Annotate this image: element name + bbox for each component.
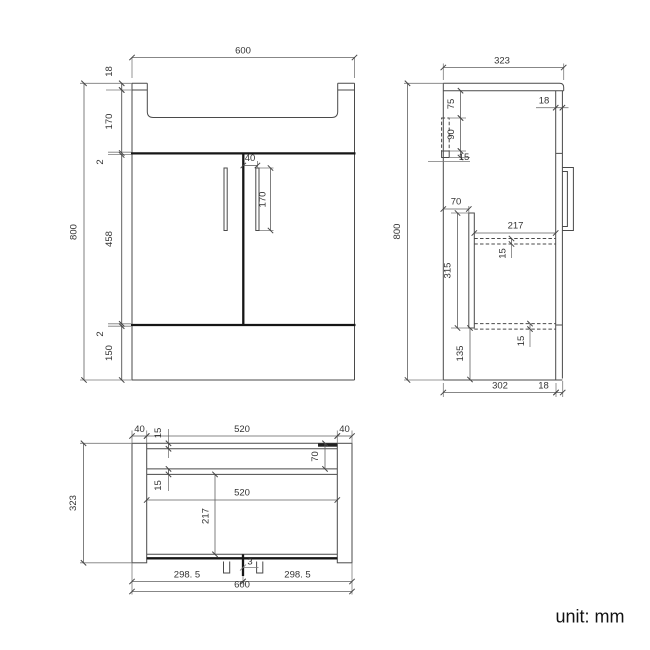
- front-height-label: 800: [69, 224, 80, 240]
- front-basin-label: 170: [104, 114, 115, 130]
- plan-structure-lines: [147, 443, 338, 573]
- side-partition-panel: [469, 213, 475, 328]
- front-view: 600 800 18 170 2 458 2 150 40 170: [69, 46, 356, 381]
- plan-rail-depth-label: 70: [310, 451, 321, 462]
- side-bracket-top-label: 75: [446, 99, 457, 110]
- plan-depth-label: 323: [68, 495, 79, 511]
- plan-panel-right-label: 40: [339, 424, 350, 435]
- front-width-label: 600: [235, 46, 251, 57]
- plan-back-thickness-label: 15: [153, 428, 164, 439]
- plan-inner-width-label: 520: [234, 488, 250, 499]
- front-handle-length-label: 170: [258, 192, 269, 208]
- technical-drawing: 600 800 18 170 2 458 2 150 40 170 323 18: [0, 0, 650, 650]
- side-shelves-hidden: [474, 239, 555, 330]
- plan-width-label: 600: [234, 580, 250, 591]
- side-bracket-foot-label: 15: [459, 152, 470, 163]
- side-outline: [443, 83, 573, 380]
- side-extension-lines: [404, 64, 569, 398]
- front-handle-left: [224, 168, 227, 231]
- side-bracket-foot: [442, 151, 450, 158]
- plan-panel-left-label: 40: [134, 424, 145, 435]
- side-shelf-depth-label: 217: [508, 221, 524, 232]
- side-depth-label: 323: [494, 56, 510, 67]
- side-shelf-thickness-label: 15: [498, 248, 509, 259]
- side-door-thickness-label: 18: [539, 96, 550, 107]
- front-plinth-label: 150: [104, 345, 115, 361]
- side-view: 323 18 75 90 15 70 217 15 315 135 15 800…: [392, 56, 573, 398]
- front-extension-lines: [80, 57, 355, 380]
- plan-rail-thickness-label: 15: [153, 480, 164, 491]
- plan-door-right-label: 298. 5: [284, 570, 310, 581]
- plan-view: 40 520 40 15 70 15 520 217 323 3 298. 5 …: [68, 424, 352, 595]
- front-door-label: 458: [104, 231, 115, 247]
- unit-note: unit: mm: [555, 607, 624, 627]
- front-gap-top-label: 2: [95, 159, 106, 164]
- front-gap-bottom-label: 2: [95, 331, 106, 336]
- front-handle-offset-label: 40: [245, 153, 256, 164]
- plan-back-width-label: 520: [234, 424, 250, 435]
- plan-door-left-label: 298. 5: [174, 570, 200, 581]
- plan-left-panel: [132, 443, 147, 563]
- side-front-lip-label: 18: [538, 381, 549, 392]
- side-base-depth-label: 302: [492, 381, 508, 392]
- side-bracket-height-label: 90: [446, 129, 457, 140]
- plan-inner-depth-label: 217: [201, 508, 212, 524]
- side-bottom-thickness-label: 15: [516, 336, 527, 347]
- front-panel-lines: [131, 153, 356, 325]
- side-height-label: 800: [392, 224, 403, 240]
- front-rim-label: 18: [104, 66, 115, 77]
- side-bottom-space-label: 135: [455, 346, 466, 362]
- side-rail-offset-label: 70: [451, 197, 462, 208]
- plan-right-panel: [337, 443, 352, 563]
- plan-door-gap-label: 3: [247, 557, 252, 568]
- side-panel-height-label: 315: [443, 263, 454, 279]
- plan-filled-bar: [318, 443, 337, 446]
